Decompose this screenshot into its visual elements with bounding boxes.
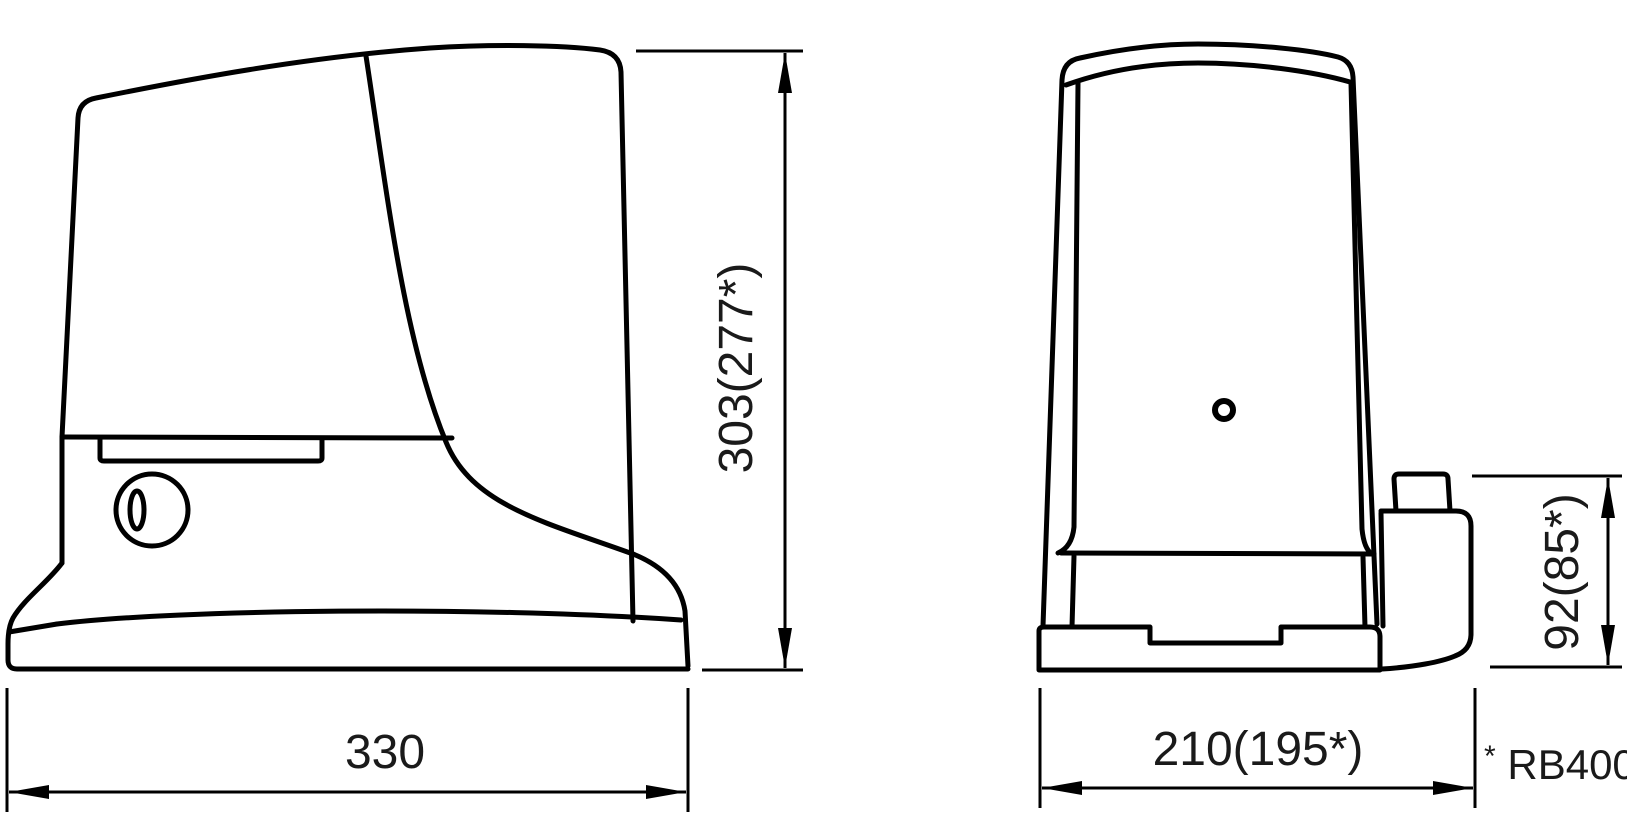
dimension-rear-height: 92(85*) bbox=[1472, 476, 1622, 667]
side-base-wedge-line bbox=[9, 624, 57, 632]
front-body-inner-left-edge bbox=[1072, 556, 1074, 627]
gearmotor-dimension-drawing: 303(277*) 330 210(195*) 92(85 bbox=[0, 0, 1627, 835]
technical-drawing-page: 303(277*) 330 210(195*) 92(85 bbox=[0, 0, 1627, 835]
dim-330-arrow-left bbox=[9, 785, 49, 799]
footnote-model-label: RB400 bbox=[1507, 741, 1627, 788]
release-housing-left-edge bbox=[1381, 513, 1383, 626]
front-base-outline bbox=[1039, 627, 1380, 670]
dim-210-arrow-left bbox=[1042, 781, 1082, 795]
dim-92-label: 92(85*) bbox=[1536, 493, 1589, 650]
side-cover-outline bbox=[62, 46, 633, 621]
dim-330-label: 330 bbox=[345, 726, 425, 779]
front-cover-outline bbox=[1043, 44, 1377, 626]
dim-92-arrow-down bbox=[1601, 625, 1615, 665]
dimension-side-width: 330 bbox=[7, 688, 688, 812]
side-cover-seam-line bbox=[366, 56, 688, 666]
front-cover-inner-arc bbox=[1066, 63, 1350, 85]
release-lever-tab bbox=[1394, 474, 1450, 511]
footnote-marker: * bbox=[1484, 740, 1496, 773]
side-recess-tray bbox=[100, 439, 322, 461]
dim-210-arrow-right bbox=[1433, 781, 1473, 795]
dim-92-arrow-up bbox=[1601, 478, 1615, 518]
footnote-rb400: * RB400 bbox=[1484, 728, 1627, 788]
dim-height-label: 303(277*) bbox=[710, 263, 763, 474]
front-body-split-line bbox=[1061, 553, 1374, 554]
release-keyhole-slot bbox=[130, 491, 144, 529]
front-body-inner-right-edge bbox=[1363, 557, 1365, 627]
indicator-hole bbox=[1215, 401, 1233, 419]
front-view bbox=[1039, 44, 1471, 670]
side-base-top-arc bbox=[57, 611, 681, 624]
dim-height-arrow-up bbox=[778, 53, 792, 93]
release-keyhole-circle bbox=[116, 474, 188, 546]
dimension-front-width: 210(195*) bbox=[1040, 688, 1475, 808]
dim-330-arrow-right bbox=[646, 785, 686, 799]
dim-height-arrow-down bbox=[778, 628, 792, 668]
dimension-side-height: 303(277*) bbox=[636, 51, 803, 670]
side-view bbox=[8, 46, 688, 669]
dim-210-label: 210(195*) bbox=[1153, 723, 1364, 776]
release-housing-outline bbox=[1381, 511, 1471, 669]
side-body-split-line bbox=[62, 437, 452, 438]
